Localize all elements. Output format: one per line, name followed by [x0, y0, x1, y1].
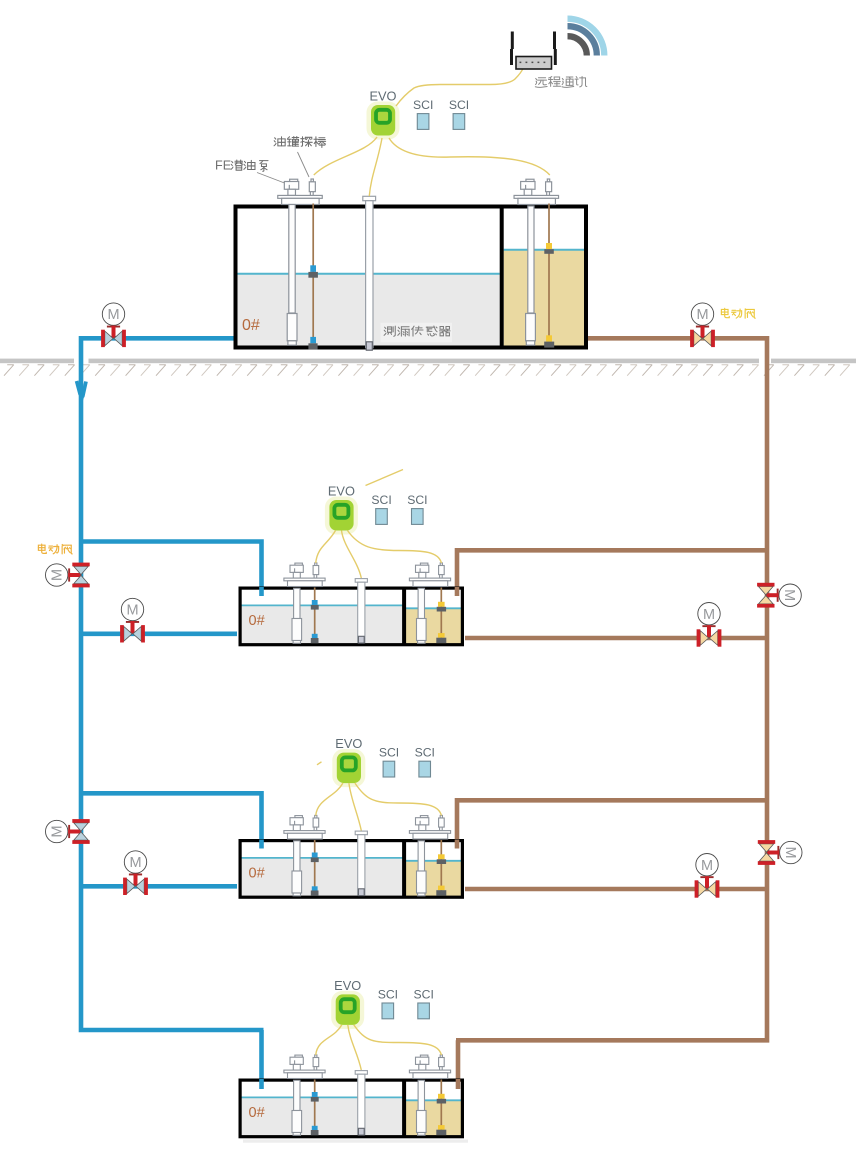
- svg-text:FE: FE: [215, 159, 231, 173]
- svg-text:0#: 0#: [242, 317, 260, 334]
